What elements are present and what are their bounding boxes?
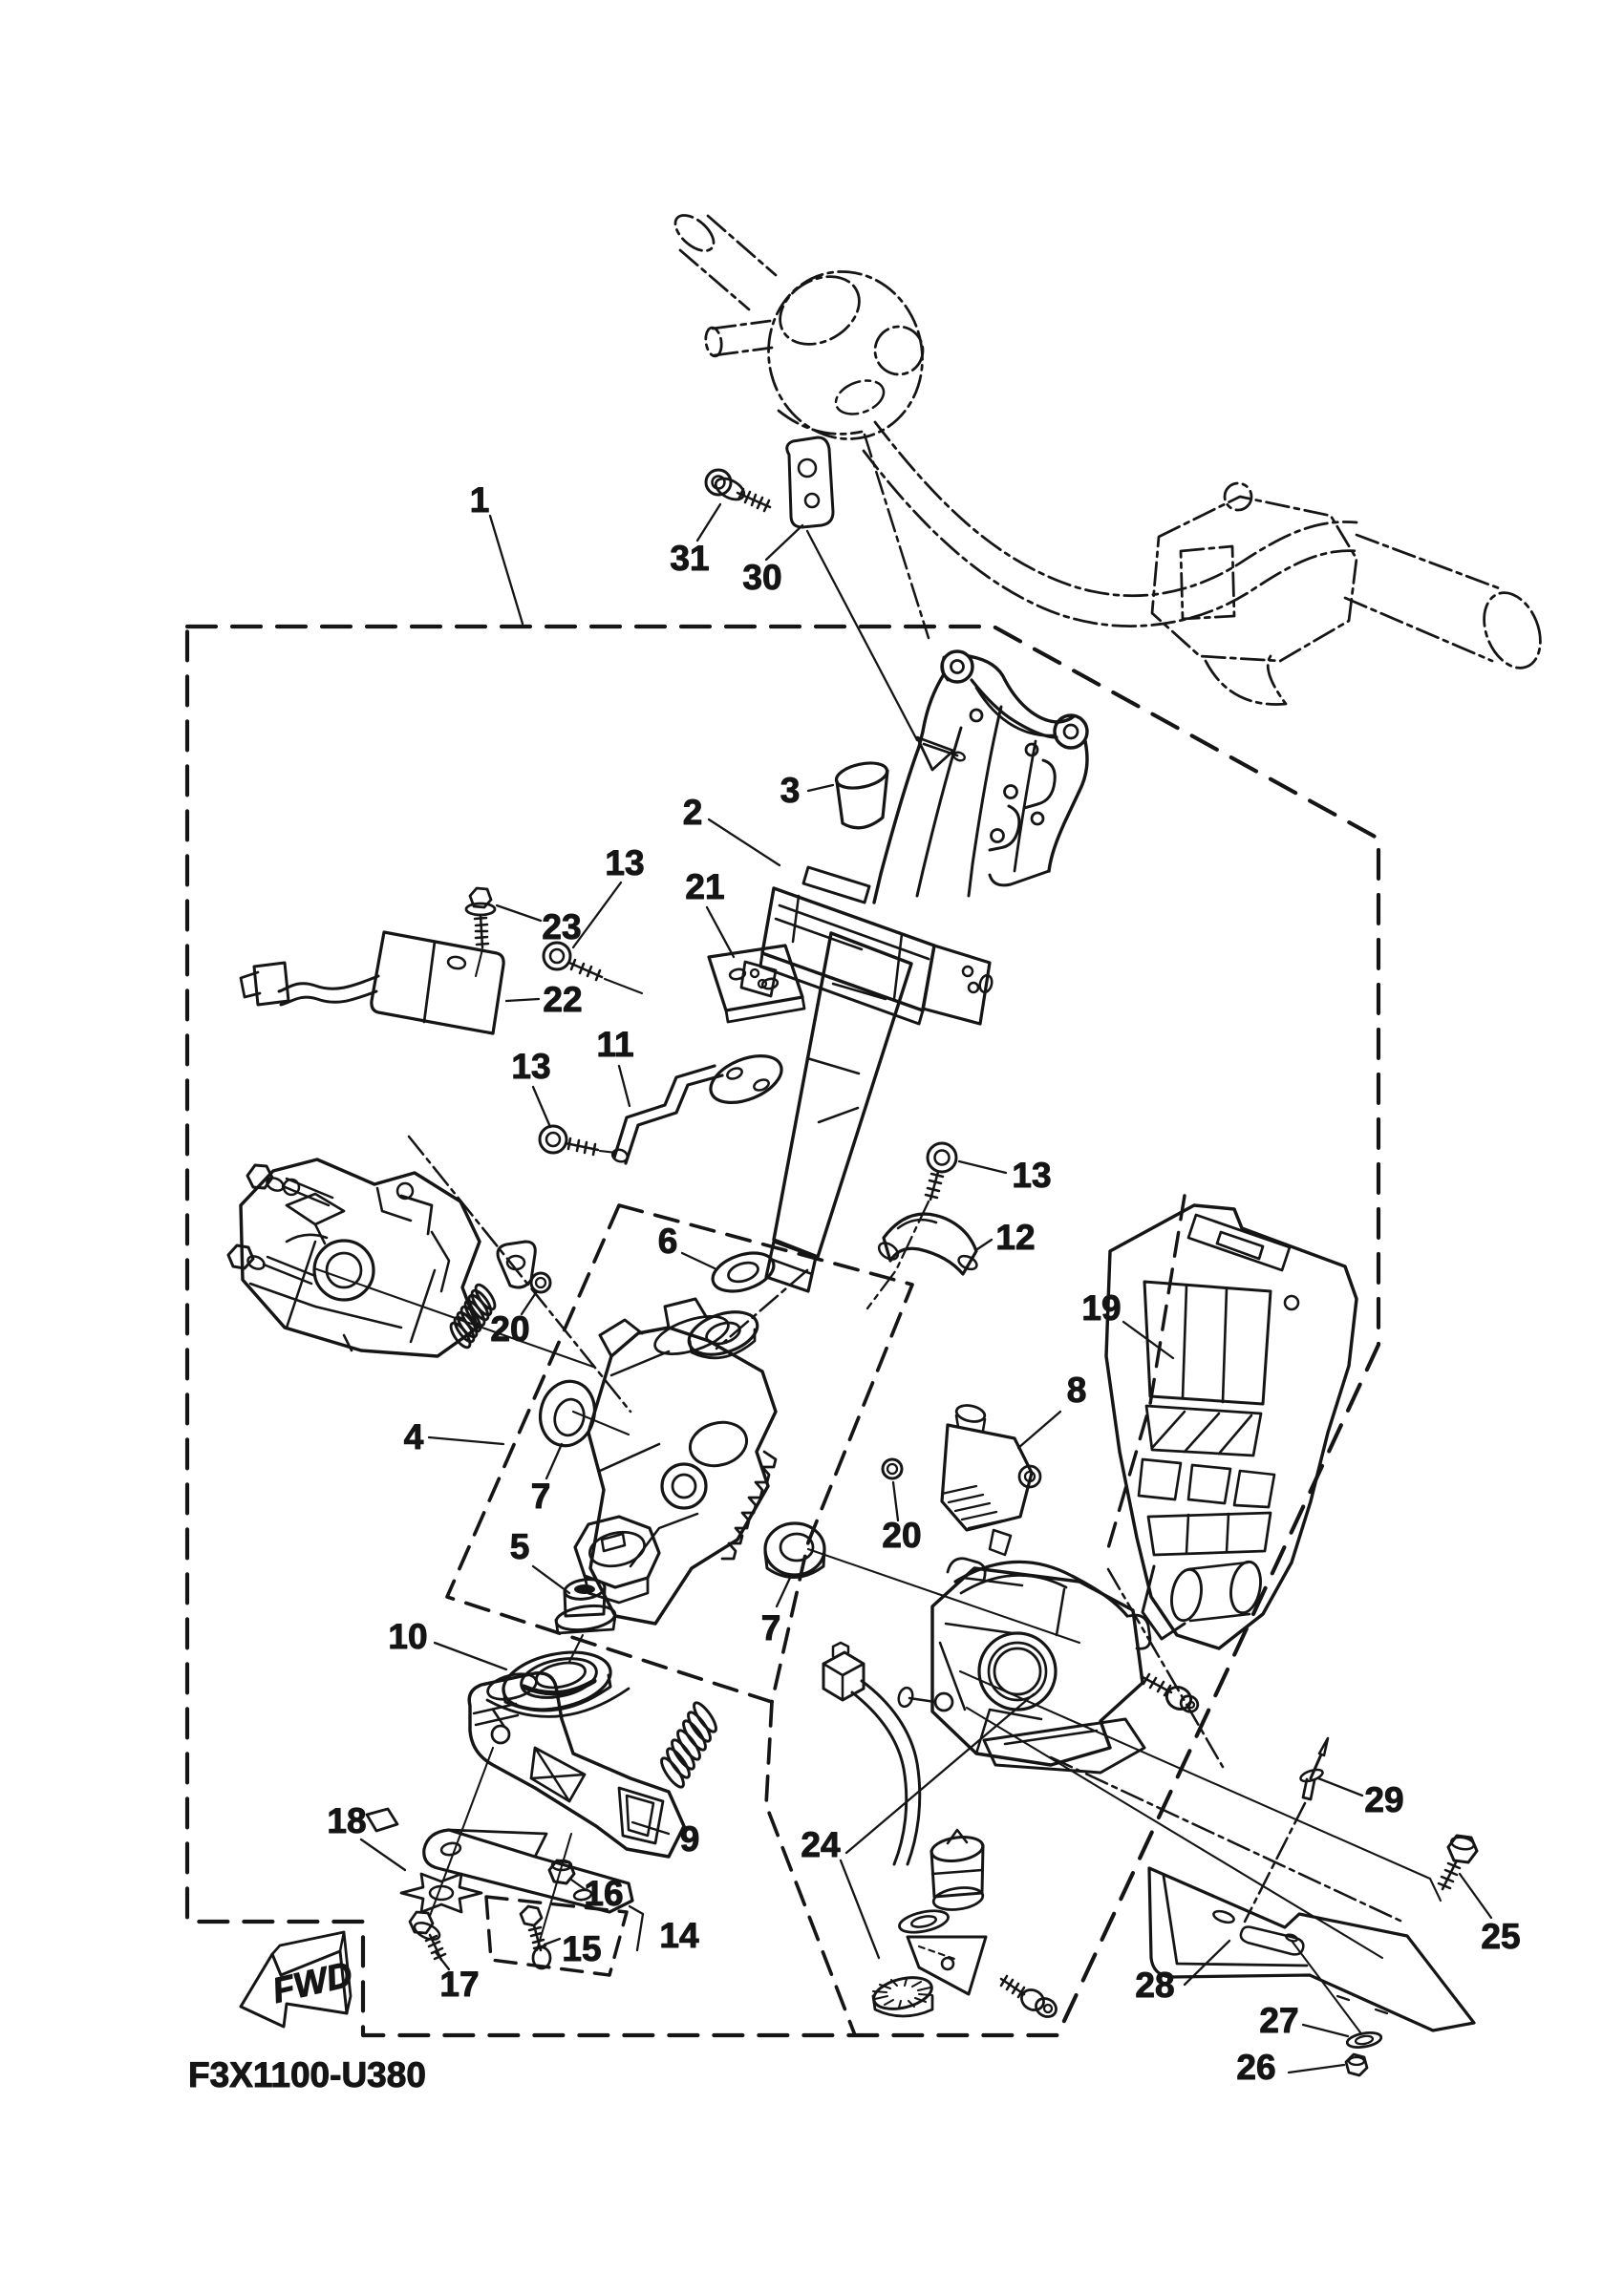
svg-text:13: 13 bbox=[1012, 1156, 1051, 1195]
svg-text:30: 30 bbox=[742, 558, 781, 597]
svg-text:F3X1100-U380: F3X1100-U380 bbox=[188, 2055, 426, 2094]
svg-text:15: 15 bbox=[562, 1929, 601, 1968]
svg-text:21: 21 bbox=[685, 867, 724, 906]
svg-text:12: 12 bbox=[995, 1218, 1035, 1257]
svg-text:6: 6 bbox=[658, 1222, 678, 1261]
svg-text:26: 26 bbox=[1236, 2048, 1275, 2087]
svg-text:17: 17 bbox=[439, 1965, 479, 2004]
svg-text:9: 9 bbox=[680, 1819, 700, 1859]
svg-text:23: 23 bbox=[542, 907, 581, 946]
svg-text:18: 18 bbox=[327, 1801, 366, 1840]
svg-text:5: 5 bbox=[510, 1527, 530, 1566]
svg-text:7: 7 bbox=[531, 1477, 551, 1516]
svg-text:13: 13 bbox=[511, 1047, 550, 1086]
svg-text:7: 7 bbox=[761, 1608, 781, 1648]
svg-text:19: 19 bbox=[1081, 1288, 1121, 1328]
svg-text:13: 13 bbox=[605, 843, 644, 882]
svg-text:29: 29 bbox=[1364, 1780, 1403, 1819]
svg-text:20: 20 bbox=[882, 1516, 921, 1555]
svg-text:2: 2 bbox=[683, 793, 703, 832]
svg-text:14: 14 bbox=[659, 1916, 699, 1955]
svg-text:28: 28 bbox=[1135, 1966, 1174, 2005]
svg-text:22: 22 bbox=[543, 980, 582, 1019]
svg-text:10: 10 bbox=[388, 1617, 427, 1656]
svg-text:16: 16 bbox=[584, 1874, 623, 1913]
svg-text:1: 1 bbox=[470, 480, 490, 520]
svg-text:20: 20 bbox=[490, 1309, 529, 1349]
svg-text:3: 3 bbox=[780, 771, 801, 810]
svg-text:25: 25 bbox=[1481, 1917, 1520, 1956]
svg-text:4: 4 bbox=[404, 1417, 424, 1456]
svg-text:11: 11 bbox=[596, 1025, 633, 1064]
svg-text:8: 8 bbox=[1067, 1371, 1087, 1410]
svg-text:31: 31 bbox=[670, 539, 709, 578]
svg-text:24: 24 bbox=[801, 1825, 841, 1864]
svg-text:27: 27 bbox=[1259, 2001, 1298, 2040]
